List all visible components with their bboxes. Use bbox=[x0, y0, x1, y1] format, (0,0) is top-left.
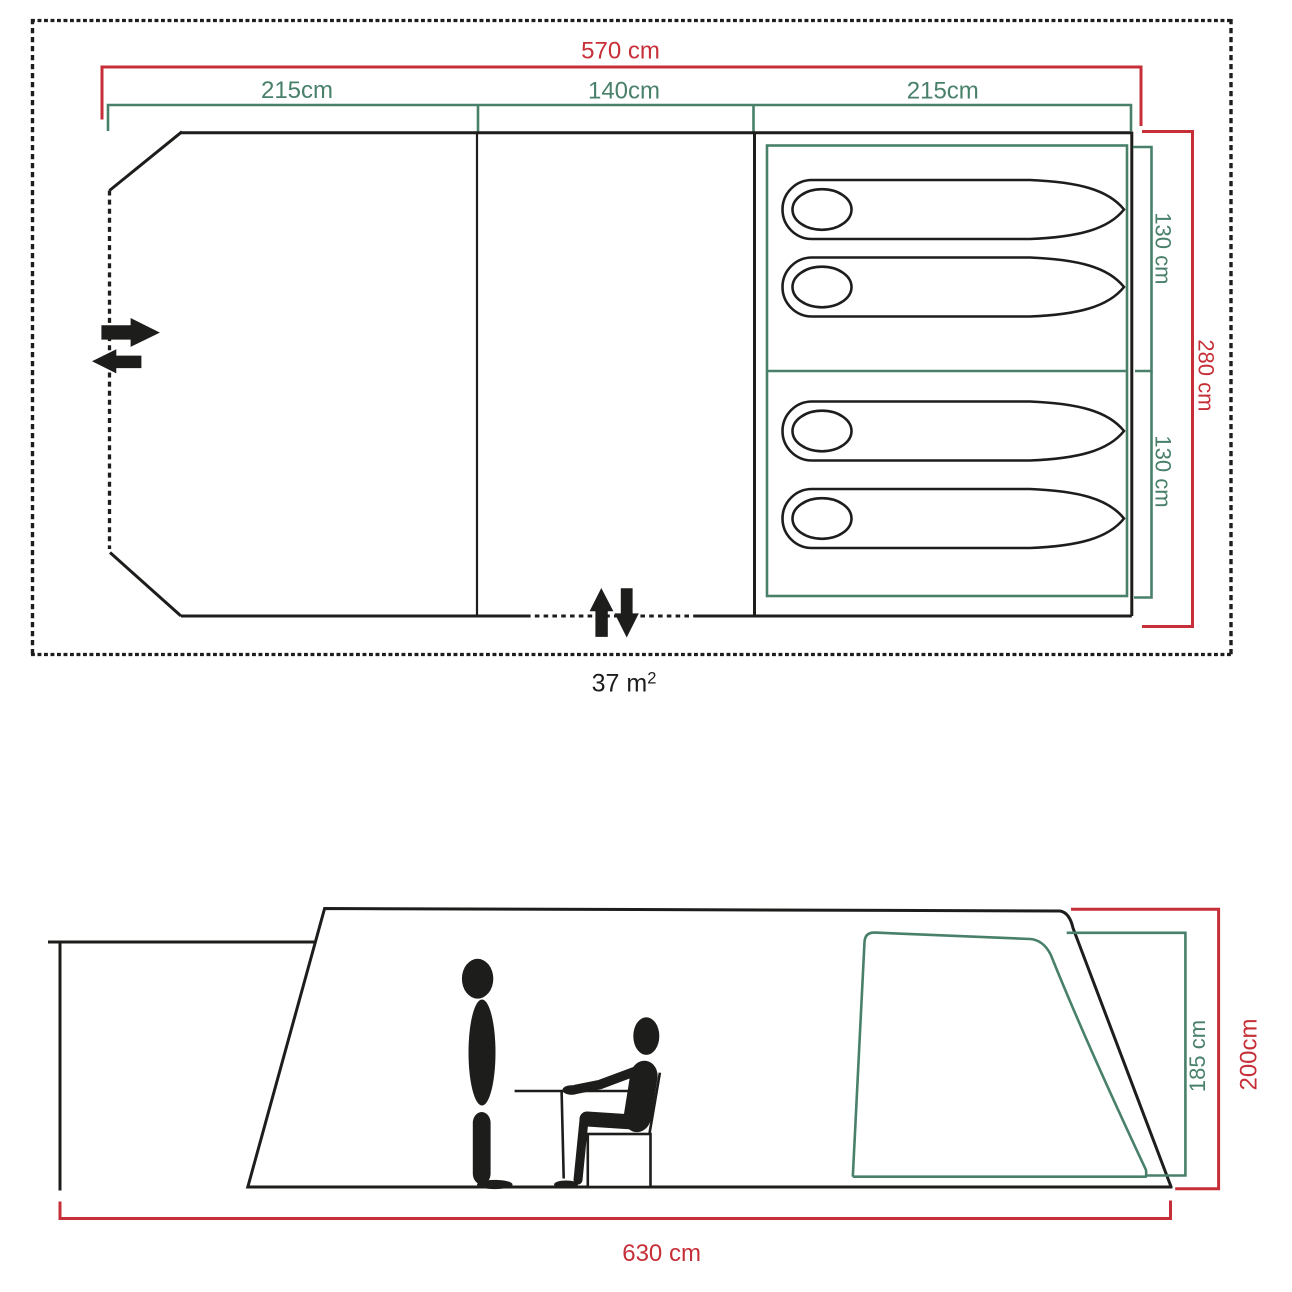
svg-text:570 cm: 570 cm bbox=[581, 38, 660, 65]
svg-text:215cm: 215cm bbox=[261, 77, 333, 104]
svg-text:200cm: 200cm bbox=[1236, 1018, 1263, 1090]
svg-text:185 cm: 185 cm bbox=[1185, 1020, 1210, 1092]
svg-text:37 m2: 37 m2 bbox=[592, 670, 657, 698]
svg-text:130 cm: 130 cm bbox=[1151, 212, 1176, 284]
svg-text:280 cm: 280 cm bbox=[1194, 339, 1219, 411]
svg-text:630 cm: 630 cm bbox=[622, 1240, 701, 1267]
svg-text:140cm: 140cm bbox=[588, 78, 660, 105]
svg-text:215cm: 215cm bbox=[907, 78, 979, 105]
svg-text:130 cm: 130 cm bbox=[1151, 435, 1176, 507]
